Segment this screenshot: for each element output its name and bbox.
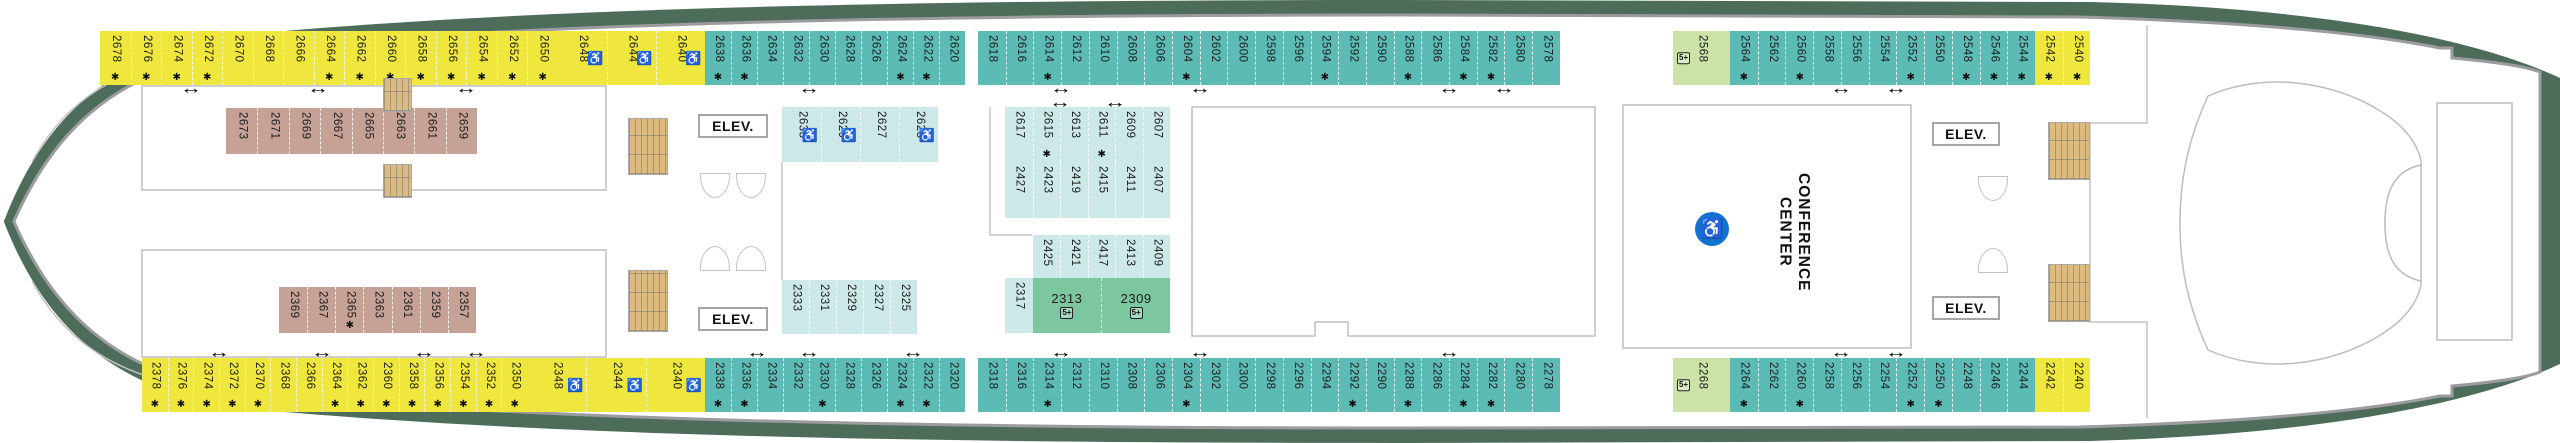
five-plus-occupancy-icon: 5+ [1130,307,1143,319]
cabin-number: 2359 [429,291,441,319]
cabin-2340[interactable]: 2340♿ [646,358,705,412]
cabin-2600[interactable]: 2600 [1227,31,1255,85]
cabin-2423[interactable]: 2423 [1033,162,1061,218]
connecting-star-icon: ✱ [433,400,441,410]
cabin-2364[interactable]: 2364✱ [322,358,348,412]
cabin-number: 2352 [483,362,495,390]
cabin-number: 2584 [1458,35,1470,63]
cabin-2626[interactable]: 2626 [861,31,887,85]
cabin-number: 2325 [898,284,910,312]
cabin-2562[interactable]: 2562 [1758,31,1786,85]
connecting-rooms-arrow-icon: ↔ [1438,344,1460,361]
cabin-number: 2558 [1822,35,1834,63]
cabin-2664[interactable]: 2664✱ [314,31,345,85]
door-arc [1978,248,2008,273]
cabin-number: 2348 [551,362,563,390]
connecting-rooms-arrow-icon: ↔ [1189,344,1211,361]
cabin-2365[interactable]: 2365✱ [335,287,363,333]
connecting-star-icon: ✱ [203,73,211,83]
cabin-2540[interactable]: 2540✱ [2063,31,2091,85]
cabin-2352[interactable]: 2352✱ [476,358,502,412]
conference-center-line1: CONFERENCE [1793,146,1812,318]
cabin-number: 2415 [1096,166,1108,194]
cabin-2284[interactable]: 2284✱ [1449,358,1477,412]
cabin-2606[interactable]: 2606 [1144,31,1172,85]
cabin-2278[interactable]: 2278 [1532,358,1560,412]
cabin-2244[interactable]: 2244 [2007,358,2035,412]
cabin-2366[interactable]: 2366 [296,358,322,412]
connecting-rooms-arrow-icon: ↔ [1830,344,1852,361]
cabin-number: 2624 [895,35,907,63]
connecting-star-icon: ✱ [1934,400,1942,410]
cabin-number: 2620 [947,35,959,63]
cabin-2652[interactable]: 2652✱ [497,31,528,85]
cabin-2556[interactable]: 2556 [1841,31,1869,85]
cabin-2409[interactable]: 2409 [1143,235,1171,278]
cabin-2611[interactable]: 2611✱ [1088,107,1116,162]
cabin-number: 2634 [765,35,777,63]
cabin-2258[interactable]: 2258 [1813,358,1841,412]
cabin-2358[interactable]: 2358✱ [399,358,425,412]
cabin-number: 2248 [1960,362,1972,390]
cabin-2330[interactable]: 2330✱ [809,358,835,412]
cabin-2590[interactable]: 2590 [1366,31,1394,85]
cabin-2246[interactable]: 2246 [1980,358,2008,412]
cabin-2336[interactable]: 2336✱ [731,358,757,412]
cabin-2354[interactable]: 2354✱ [450,358,476,412]
cabin-2413[interactable]: 2413 [1115,235,1143,278]
cabin-number: 2610 [1097,35,1109,63]
connecting-star-icon: ✱ [818,400,826,410]
connecting-star-icon: ✱ [2073,73,2081,83]
cabin-2624[interactable]: 2624✱ [887,31,913,85]
connecting-star-icon: ✱ [202,400,210,410]
cabin-number: 2615 [1041,111,1053,139]
cabin-2280[interactable]: 2280 [1504,358,1532,412]
cabin-2309[interactable]: 23095+ [1101,278,1170,333]
cabin-2262[interactable]: 2262 [1758,358,1786,412]
cabin-2666[interactable]: 2666 [283,31,314,85]
cabin-number: 2417 [1096,239,1108,267]
cabin-2620[interactable]: 2620 [939,31,965,85]
cabin-2407[interactable]: 2407 [1143,162,1171,218]
cabin-2596[interactable]: 2596 [1283,31,1311,85]
cabin-2656[interactable]: 2656✱ [436,31,467,85]
cabin-2302[interactable]: 2302 [1200,358,1228,412]
cabin-2607[interactable]: 2607 [1143,107,1171,162]
cabin-number: 2659 [456,112,468,140]
cabin-number: 2578 [1541,35,1553,63]
connecting-star-icon: ✱ [511,400,519,410]
cabin-number: 2668 [263,35,275,63]
connecting-star-icon: ✱ [922,73,930,83]
door-arc [1978,176,2008,201]
connecting-star-icon: ✱ [382,400,390,410]
cabin-2333[interactable]: 2333 [782,280,809,334]
door-arc [736,246,766,271]
cabin-2419[interactable]: 2419 [1060,162,1088,218]
connecting-star-icon: ✱ [1098,150,1106,160]
deck-plan: 2678✱2676✱2674✱2672✱2670266826662664✱266… [0,0,2560,443]
connecting-star-icon: ✱ [331,400,339,410]
cabin-2668[interactable]: 2668 [253,31,284,85]
cabin-2633[interactable]: 2633♿ [782,107,821,162]
cabin-2313[interactable]: 23135+ [1033,278,1102,333]
cabin-2650[interactable]: 2650✱ [527,31,558,85]
connecting-rooms-arrow-icon: ↔ [1438,80,1460,97]
cabin-2608[interactable]: 2608 [1117,31,1145,85]
connecting-star-icon: ✱ [1740,73,1748,83]
cabin-2598[interactable]: 2598 [1255,31,1283,85]
cabin-number: 2411 [1124,166,1136,193]
cabin-2298[interactable]: 2298 [1255,358,1283,412]
cabin-2588[interactable]: 2588✱ [1394,31,1422,85]
cabin-2326[interactable]: 2326 [861,358,887,412]
cabin-2554[interactable]: 2554 [1869,31,1897,85]
cabin-2582[interactable]: 2582✱ [1477,31,1505,85]
cabin-2363[interactable]: 2363 [363,287,391,333]
cabin-number: 2611 [1096,111,1108,138]
cabin-number: 2310 [1097,362,1109,390]
cabin-2617[interactable]: 2617 [1005,107,1033,162]
cabin-2636[interactable]: 2636✱ [731,31,757,85]
connecting-rooms-arrow-icon: ↔ [798,344,820,361]
cabin-number: 2292 [1347,362,1359,390]
cabin-2672[interactable]: 2672✱ [192,31,223,85]
cabin-2240[interactable]: 2240 [2063,358,2091,412]
connecting-star-icon: ✱ [356,73,364,83]
cabin-number: 2552 [1905,35,1917,63]
cabin-2316[interactable]: 2316 [1006,358,1034,412]
connecting-star-icon: ✱ [1404,73,1412,83]
cabin-number: 2592 [1347,35,1359,63]
cabin-2542[interactable]: 2542✱ [2035,31,2063,85]
cabin-number: 2544 [2016,35,2028,63]
cabin-2421[interactable]: 2421 [1060,235,1088,278]
cabin-2348[interactable]: 2348♿ [527,358,586,412]
cabin-2661[interactable]: 2661 [414,108,445,154]
cabin-number: 2360 [381,362,393,390]
cabin-2592[interactable]: 2592 [1338,31,1366,85]
connecting-star-icon: ✱ [1321,73,1329,83]
cabin-number: 2365 [344,291,356,319]
cabin-number: 2374 [201,362,213,390]
cabin-number: 2604 [1181,35,1193,63]
connecting-star-icon: ✱ [254,400,262,410]
cabin-2356[interactable]: 2356✱ [424,358,450,412]
cabin-2628[interactable]: 2628 [835,31,861,85]
cabin-number: 2250 [1933,362,1945,390]
cabin-2331[interactable]: 2331 [809,280,836,334]
cabin-number: 2419 [1069,166,1081,194]
cabin-2602[interactable]: 2602 [1200,31,1228,85]
cabin-2417[interactable]: 2417 [1088,235,1116,278]
cabin-2427[interactable]: 2427 [1005,162,1033,218]
connecting-star-icon: ✱ [1404,400,1412,410]
cabin-2328[interactable]: 2328 [835,358,861,412]
door-arc [700,173,730,198]
cabin-number: 2280 [1513,362,1525,390]
cabin-2568[interactable]: 25685+ [1673,31,1730,85]
cabin-2665[interactable]: 2665 [352,108,383,154]
five-plus-occupancy-icon: 5+ [1677,52,1690,64]
cabin-2332[interactable]: 2332 [783,358,809,412]
cabin-number: 2364 [329,362,341,390]
cabin-2622[interactable]: 2622✱ [913,31,939,85]
cabin-number: 2376 [175,362,187,390]
cabin-2296[interactable]: 2296 [1283,358,1311,412]
connecting-star-icon: ✱ [142,73,150,83]
cabin-2317[interactable]: 2317 [1005,278,1033,333]
cabin-2580[interactable]: 2580 [1504,31,1532,85]
cabin-2376[interactable]: 2376✱ [168,358,194,412]
connecting-star-icon: ✱ [1907,73,1915,83]
cabin-2360[interactable]: 2360✱ [373,358,399,412]
connecting-rooms-arrow-icon: ↔ [902,344,924,361]
cabin-number: 2662 [354,35,366,63]
cabin-number: 2614 [1042,35,1054,63]
cabin-number: 2407 [1151,166,1163,194]
cabin-2630[interactable]: 2630 [809,31,835,85]
cabin-2612[interactable]: 2612 [1061,31,1089,85]
cabin-2658[interactable]: 2658✱ [405,31,436,85]
cabin-2324[interactable]: 2324✱ [887,358,913,412]
connecting-star-icon: ✱ [177,400,185,410]
cabin-number: 2427 [1013,166,1025,194]
cabin-number: 2602 [1208,35,1220,63]
cabin-number: 2622 [921,35,933,63]
cabin-2659[interactable]: 2659 [446,108,477,154]
connecting-rooms-arrow-icon: ↔ [1830,80,1852,97]
cabin-number: 2554 [1877,35,1889,63]
cabin-2618[interactable]: 2618 [978,31,1006,85]
cabin-2282[interactable]: 2282✱ [1477,358,1505,412]
cabin-2586[interactable]: 2586 [1421,31,1449,85]
cabin-2334[interactable]: 2334 [757,358,783,412]
cabin-2294[interactable]: 2294 [1311,358,1339,412]
cabin-2264[interactable]: 2264✱ [1730,358,1758,412]
cabin-2359[interactable]: 2359 [420,287,448,333]
cabin-2411[interactable]: 2411 [1115,162,1143,218]
connecting-star-icon: ✱ [2017,73,2025,83]
cabin-2304[interactable]: 2304✱ [1172,358,1200,412]
connecting-rooms-arrow-icon: ↔ [465,344,487,361]
cabin-2638[interactable]: 2638✱ [705,31,731,85]
five-plus-occupancy-icon: 5+ [1677,379,1690,391]
cabin-number: 2330 [817,362,829,390]
cabin-2314[interactable]: 2314✱ [1033,358,1061,412]
cabin-2634[interactable]: 2634 [757,31,783,85]
cabin-2594[interactable]: 2594✱ [1311,31,1339,85]
connecting-rooms-arrow-icon: ↔ [180,80,202,97]
cabin-2286[interactable]: 2286 [1421,358,1449,412]
cabin-number: 2242 [2043,362,2055,390]
cabin-number: 2252 [1905,362,1917,390]
connecting-rooms-arrow-icon: ↔ [1189,80,1211,97]
cabin-2564[interactable]: 2564✱ [1730,31,1758,85]
five-plus-occupancy-icon: 5+ [1060,307,1073,319]
cabin-2654[interactable]: 2654✱ [466,31,497,85]
cabin-2288[interactable]: 2288✱ [1394,358,1422,412]
cabin-2242[interactable]: 2242 [2035,358,2063,412]
cabin-2322[interactable]: 2322✱ [913,358,939,412]
cabin-2329[interactable]: 2329 [836,280,863,334]
cabin-2548[interactable]: 2548✱ [1952,31,1980,85]
cabin-2550[interactable]: 2550 [1924,31,1952,85]
cabin-2648[interactable]: 2648♿ [558,31,607,85]
cabin-number: 2333 [790,284,802,312]
cabin-number: 2369 [287,291,299,319]
cabin-number: 2322 [921,362,933,390]
cabin-2546[interactable]: 2546✱ [1980,31,2008,85]
cabin-2584[interactable]: 2584✱ [1449,31,1477,85]
wheelchair-icon: ♿ [802,128,818,141]
cabin-2663[interactable]: 2663 [383,108,414,154]
cabin-2312[interactable]: 2312 [1061,358,1089,412]
cabin-number: 2290 [1375,362,1387,390]
cabin-2374[interactable]: 2374✱ [193,358,219,412]
cabin-2256[interactable]: 2256 [1841,358,1869,412]
cabin-2425[interactable]: 2425 [1033,235,1061,278]
cabin-2306[interactable]: 2306 [1144,358,1172,412]
cabin-2327[interactable]: 2327 [863,280,890,334]
cabin-2610[interactable]: 2610 [1089,31,1117,85]
cabin-2673[interactable]: 2673 [226,108,257,154]
cabin-2318[interactable]: 2318 [978,358,1006,412]
cabin-2558[interactable]: 2558 [1813,31,1841,85]
cabin-number: 2608 [1125,35,1137,63]
cabin-2678[interactable]: 2678✱ [100,31,131,85]
cabin-2560[interactable]: 2560✱ [1785,31,1813,85]
connecting-star-icon: ✱ [896,73,904,83]
connecting-star-icon: ✱ [1796,400,1804,410]
cabin-number: 2332 [791,362,803,390]
cabin-2350[interactable]: 2350✱ [501,358,527,412]
cabin-2308[interactable]: 2308 [1117,358,1145,412]
cabin-2667[interactable]: 2667 [320,108,351,154]
cabin-number: 2632 [791,35,803,63]
cabin-number: 2656 [446,35,458,63]
cabin-2613[interactable]: 2613 [1060,107,1088,162]
cabin-2609[interactable]: 2609 [1115,107,1143,162]
cabin-number: 2340 [670,362,682,390]
cabin-2320[interactable]: 2320 [939,358,965,412]
cabin-2248[interactable]: 2248 [1952,358,1980,412]
cabin-number: 2562 [1766,35,1778,63]
cabin-number: 2663 [393,112,405,140]
cabin-2552[interactable]: 2552✱ [1896,31,1924,85]
cabin-number: 2542 [2043,35,2055,63]
cabin-2361[interactable]: 2361 [392,287,420,333]
cabin-2623[interactable]: 2623♿ [899,107,938,162]
cabin-2644[interactable]: 2644♿ [607,31,656,85]
cabin-2344[interactable]: 2344♿ [586,358,645,412]
cabin-number: 2254 [1877,362,1889,390]
cabin-2632[interactable]: 2632 [783,31,809,85]
cabin-number: 2354 [458,362,470,390]
cabin-2367[interactable]: 2367 [307,287,335,333]
cabin-2292[interactable]: 2292✱ [1338,358,1366,412]
stairs-icon [2048,264,2090,322]
cabin-2357[interactable]: 2357 [448,287,476,333]
cabin-2614[interactable]: 2614✱ [1033,31,1061,85]
cabin-2640[interactable]: 2640♿ [656,31,705,85]
cabin-2662[interactable]: 2662✱ [344,31,375,85]
cabin-2372[interactable]: 2372✱ [219,358,245,412]
cabin-2544[interactable]: 2544✱ [2007,31,2035,85]
cabin-2629[interactable]: 2629♿ [821,107,860,162]
cabin-number: 2316 [1014,362,1026,390]
connecting-star-icon: ✱ [1182,400,1190,410]
cabin-2252[interactable]: 2252✱ [1896,358,1924,412]
cabin-2674[interactable]: 2674✱ [161,31,192,85]
cabin-2370[interactable]: 2370✱ [245,358,271,412]
cabin-number: 2320 [947,362,959,390]
cabin-2604[interactable]: 2604✱ [1172,31,1200,85]
connecting-star-icon: ✱ [417,73,425,83]
connecting-star-icon: ✱ [478,73,486,83]
cabin-2268[interactable]: 22685+ [1673,358,1730,412]
stairs-icon [628,118,668,175]
cabin-2369[interactable]: 2369 [279,287,307,333]
cabin-number: 2361 [400,291,412,319]
cabin-number: 2282 [1485,362,1497,390]
cabin-number: 2607 [1151,111,1163,139]
cabin-2627[interactable]: 2627 [860,107,899,162]
cabin-2578[interactable]: 2578 [1532,31,1560,85]
cabin-2338[interactable]: 2338✱ [705,358,731,412]
cabin-2660[interactable]: 2660✱ [375,31,406,85]
connecting-star-icon: ✱ [111,73,119,83]
cabin-2260[interactable]: 2260✱ [1785,358,1813,412]
cabin-number: 2676 [141,35,153,63]
stairs-icon [383,164,412,198]
cabin-number: 2260 [1794,362,1806,390]
cabin-number: 2336 [739,362,751,390]
cabin-2669[interactable]: 2669 [289,108,320,154]
cabin-2615[interactable]: 2615✱ [1033,107,1061,162]
wheelchair-icon: ♿ [841,128,857,141]
cabin-2368[interactable]: 2368 [270,358,296,412]
cabin-2300[interactable]: 2300 [1227,358,1255,412]
cabin-2362[interactable]: 2362✱ [347,358,373,412]
cabin-number: 2334 [765,362,777,390]
connecting-star-icon: ✱ [539,73,547,83]
elevator-label: ELEV. [1932,296,2000,320]
cabin-number: 2326 [869,362,881,390]
cabin-number: 2648 [576,35,588,63]
cabin-2671[interactable]: 2671 [257,108,288,154]
cabin-2415[interactable]: 2415 [1088,162,1116,218]
cabin-number: 2628 [843,35,855,63]
connecting-star-icon: ✱ [1043,150,1051,160]
cabin-2616[interactable]: 2616 [1006,31,1034,85]
cabin-2676[interactable]: 2676✱ [131,31,162,85]
cabin-number: 2580 [1513,35,1525,63]
cabin-number: 2626 [869,35,881,63]
cabin-2310[interactable]: 2310 [1089,358,1117,412]
cabin-2250[interactable]: 2250✱ [1924,358,1952,412]
cabin-2378[interactable]: 2378✱ [142,358,168,412]
cabin-2325[interactable]: 2325 [890,280,917,334]
cabin-number: 2598 [1264,35,1276,63]
cabin-2254[interactable]: 2254 [1869,358,1897,412]
connecting-rooms-arrow-icon: ↔ [1885,344,1907,361]
connecting-star-icon: ✱ [2045,73,2053,83]
cabin-2290[interactable]: 2290 [1366,358,1394,412]
wheelchair-icon: ♿ [587,52,603,65]
cabin-2670[interactable]: 2670 [222,31,253,85]
